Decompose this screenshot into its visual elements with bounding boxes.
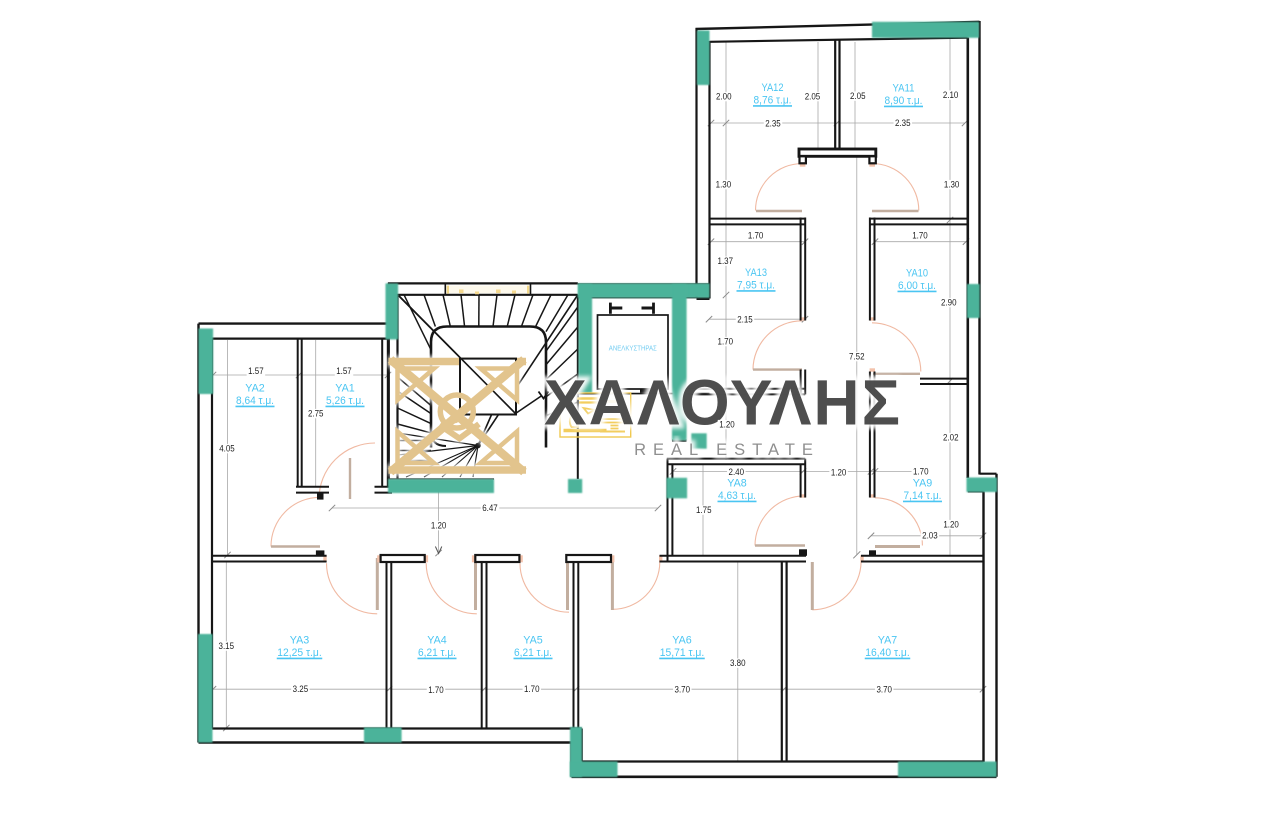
svg-text:3.80: 3.80 bbox=[730, 658, 746, 668]
svg-text:15,71 τ.μ.: 15,71 τ.μ. bbox=[660, 647, 705, 659]
svg-text:1.30: 1.30 bbox=[716, 180, 732, 190]
svg-text:2.05: 2.05 bbox=[805, 92, 821, 102]
svg-text:1.20: 1.20 bbox=[431, 521, 447, 531]
svg-text:YA11: YA11 bbox=[893, 83, 915, 95]
svg-text:1.70: 1.70 bbox=[913, 467, 929, 477]
svg-text:YA4: YA4 bbox=[427, 635, 447, 647]
svg-text:1.75: 1.75 bbox=[696, 505, 712, 515]
svg-text:YA6: YA6 bbox=[672, 635, 692, 647]
svg-text:3.70: 3.70 bbox=[675, 685, 691, 695]
svg-text:6.47: 6.47 bbox=[482, 503, 498, 513]
svg-text:1.70: 1.70 bbox=[912, 231, 928, 241]
svg-text:YA7: YA7 bbox=[878, 635, 898, 647]
svg-text:YA13: YA13 bbox=[745, 267, 767, 279]
svg-text:2.35: 2.35 bbox=[765, 119, 781, 129]
svg-text:1.20: 1.20 bbox=[719, 420, 735, 430]
svg-text:12,25 τ.μ.: 12,25 τ.μ. bbox=[277, 647, 322, 659]
svg-text:7,95 τ.μ.: 7,95 τ.μ. bbox=[737, 280, 775, 292]
svg-text:1.20: 1.20 bbox=[831, 468, 847, 478]
svg-text:YA1: YA1 bbox=[335, 383, 355, 395]
svg-text:YA9: YA9 bbox=[913, 478, 933, 490]
svg-text:2.40: 2.40 bbox=[729, 467, 745, 477]
svg-text:2.02: 2.02 bbox=[943, 433, 959, 443]
svg-text:1.57: 1.57 bbox=[248, 366, 264, 376]
svg-text:YA8: YA8 bbox=[727, 478, 747, 490]
svg-text:2.00: 2.00 bbox=[716, 92, 732, 102]
svg-text:2.75: 2.75 bbox=[308, 409, 324, 419]
svg-text:3.70: 3.70 bbox=[876, 685, 892, 695]
svg-text:1.70: 1.70 bbox=[524, 684, 540, 694]
svg-text:6,21 τ.μ.: 6,21 τ.μ. bbox=[418, 647, 456, 659]
svg-text:2.10: 2.10 bbox=[943, 90, 959, 100]
svg-text:4,63 τ.μ.: 4,63 τ.μ. bbox=[718, 490, 756, 502]
svg-text:1.70: 1.70 bbox=[718, 337, 734, 347]
svg-text:1.70: 1.70 bbox=[748, 231, 764, 241]
svg-text:1.30: 1.30 bbox=[944, 180, 960, 190]
svg-text:5,26 τ.μ.: 5,26 τ.μ. bbox=[326, 395, 364, 407]
svg-text:YA5: YA5 bbox=[523, 635, 543, 647]
svg-text:2.90: 2.90 bbox=[941, 298, 957, 308]
svg-text:7,14 τ.μ.: 7,14 τ.μ. bbox=[904, 490, 942, 502]
svg-text:16,40 τ.μ.: 16,40 τ.μ. bbox=[865, 647, 910, 659]
svg-text:YA12: YA12 bbox=[762, 82, 784, 94]
svg-text:2.03: 2.03 bbox=[922, 531, 938, 541]
svg-text:8,64 τ.μ.: 8,64 τ.μ. bbox=[236, 395, 274, 407]
svg-text:1.57: 1.57 bbox=[336, 366, 352, 376]
svg-text:1.70: 1.70 bbox=[428, 685, 444, 695]
svg-text:REAL ESTATE: REAL ESTATE bbox=[634, 441, 820, 459]
svg-text:3.25: 3.25 bbox=[293, 684, 309, 694]
svg-text:8,76 τ.μ.: 8,76 τ.μ. bbox=[754, 95, 792, 107]
svg-text:6,00 τ.μ.: 6,00 τ.μ. bbox=[898, 280, 936, 292]
svg-text:YA3: YA3 bbox=[290, 635, 310, 647]
svg-text:4.05: 4.05 bbox=[219, 444, 235, 454]
svg-text:8,90 τ.μ.: 8,90 τ.μ. bbox=[885, 95, 923, 107]
svg-text:6,21 τ.μ.: 6,21 τ.μ. bbox=[514, 647, 552, 659]
svg-text:3.15: 3.15 bbox=[219, 641, 235, 651]
svg-text:YA2: YA2 bbox=[245, 383, 265, 395]
svg-text:2.35: 2.35 bbox=[895, 118, 911, 128]
svg-text:YA10: YA10 bbox=[906, 268, 928, 280]
svg-text:2.15: 2.15 bbox=[737, 315, 753, 325]
svg-text:7.52: 7.52 bbox=[849, 352, 865, 362]
svg-text:ΑΝΕΛΚΥΣΤΗΡΑΣ: ΑΝΕΛΚΥΣΤΗΡΑΣ bbox=[609, 344, 657, 353]
svg-text:1.37: 1.37 bbox=[718, 256, 734, 266]
svg-text:1.20: 1.20 bbox=[943, 520, 959, 530]
svg-text:2.05: 2.05 bbox=[850, 91, 866, 101]
